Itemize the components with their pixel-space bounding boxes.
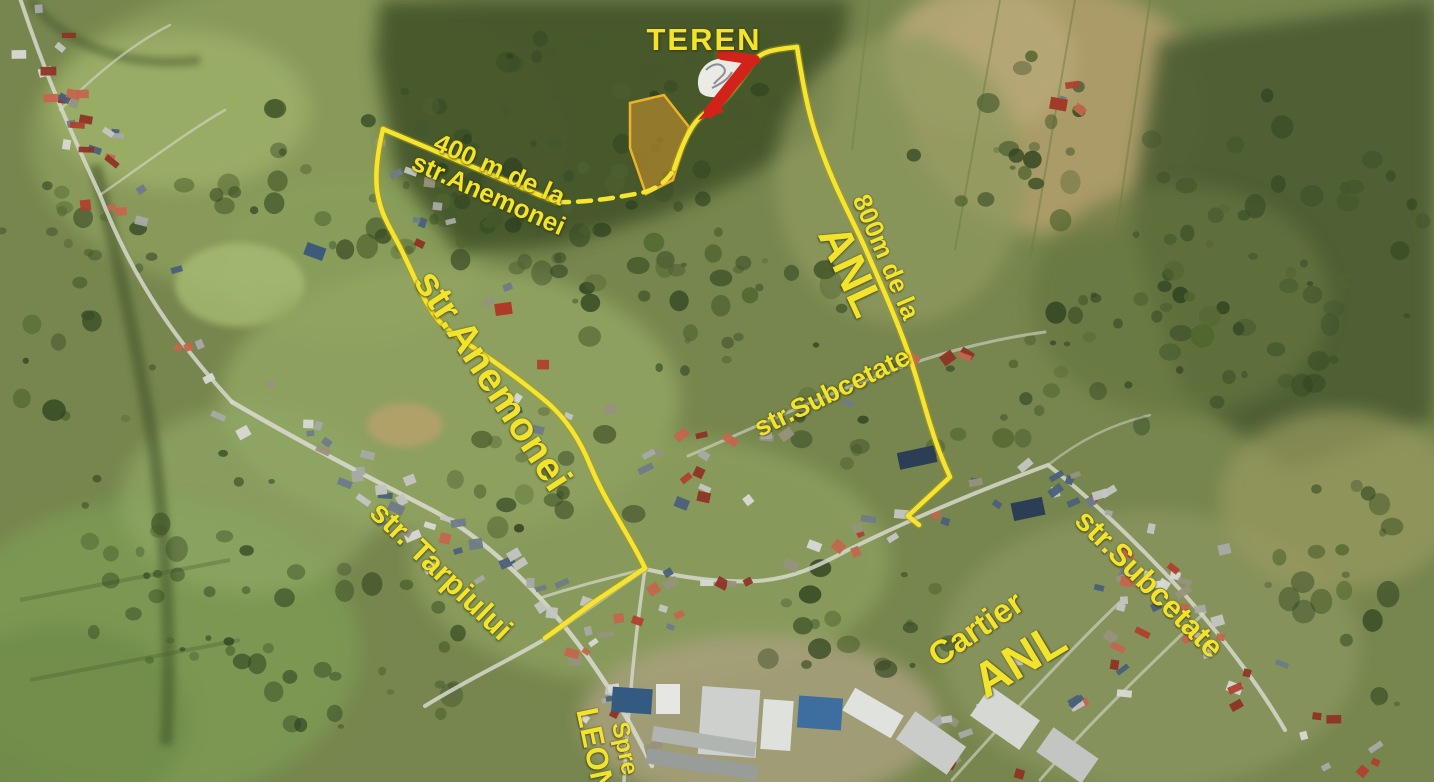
label-teren: TEREN bbox=[646, 24, 761, 56]
satellite-imagery bbox=[0, 0, 1434, 782]
satellite-map: TEREN 400 m de la str.Anemonei str.Anemo… bbox=[0, 0, 1434, 782]
